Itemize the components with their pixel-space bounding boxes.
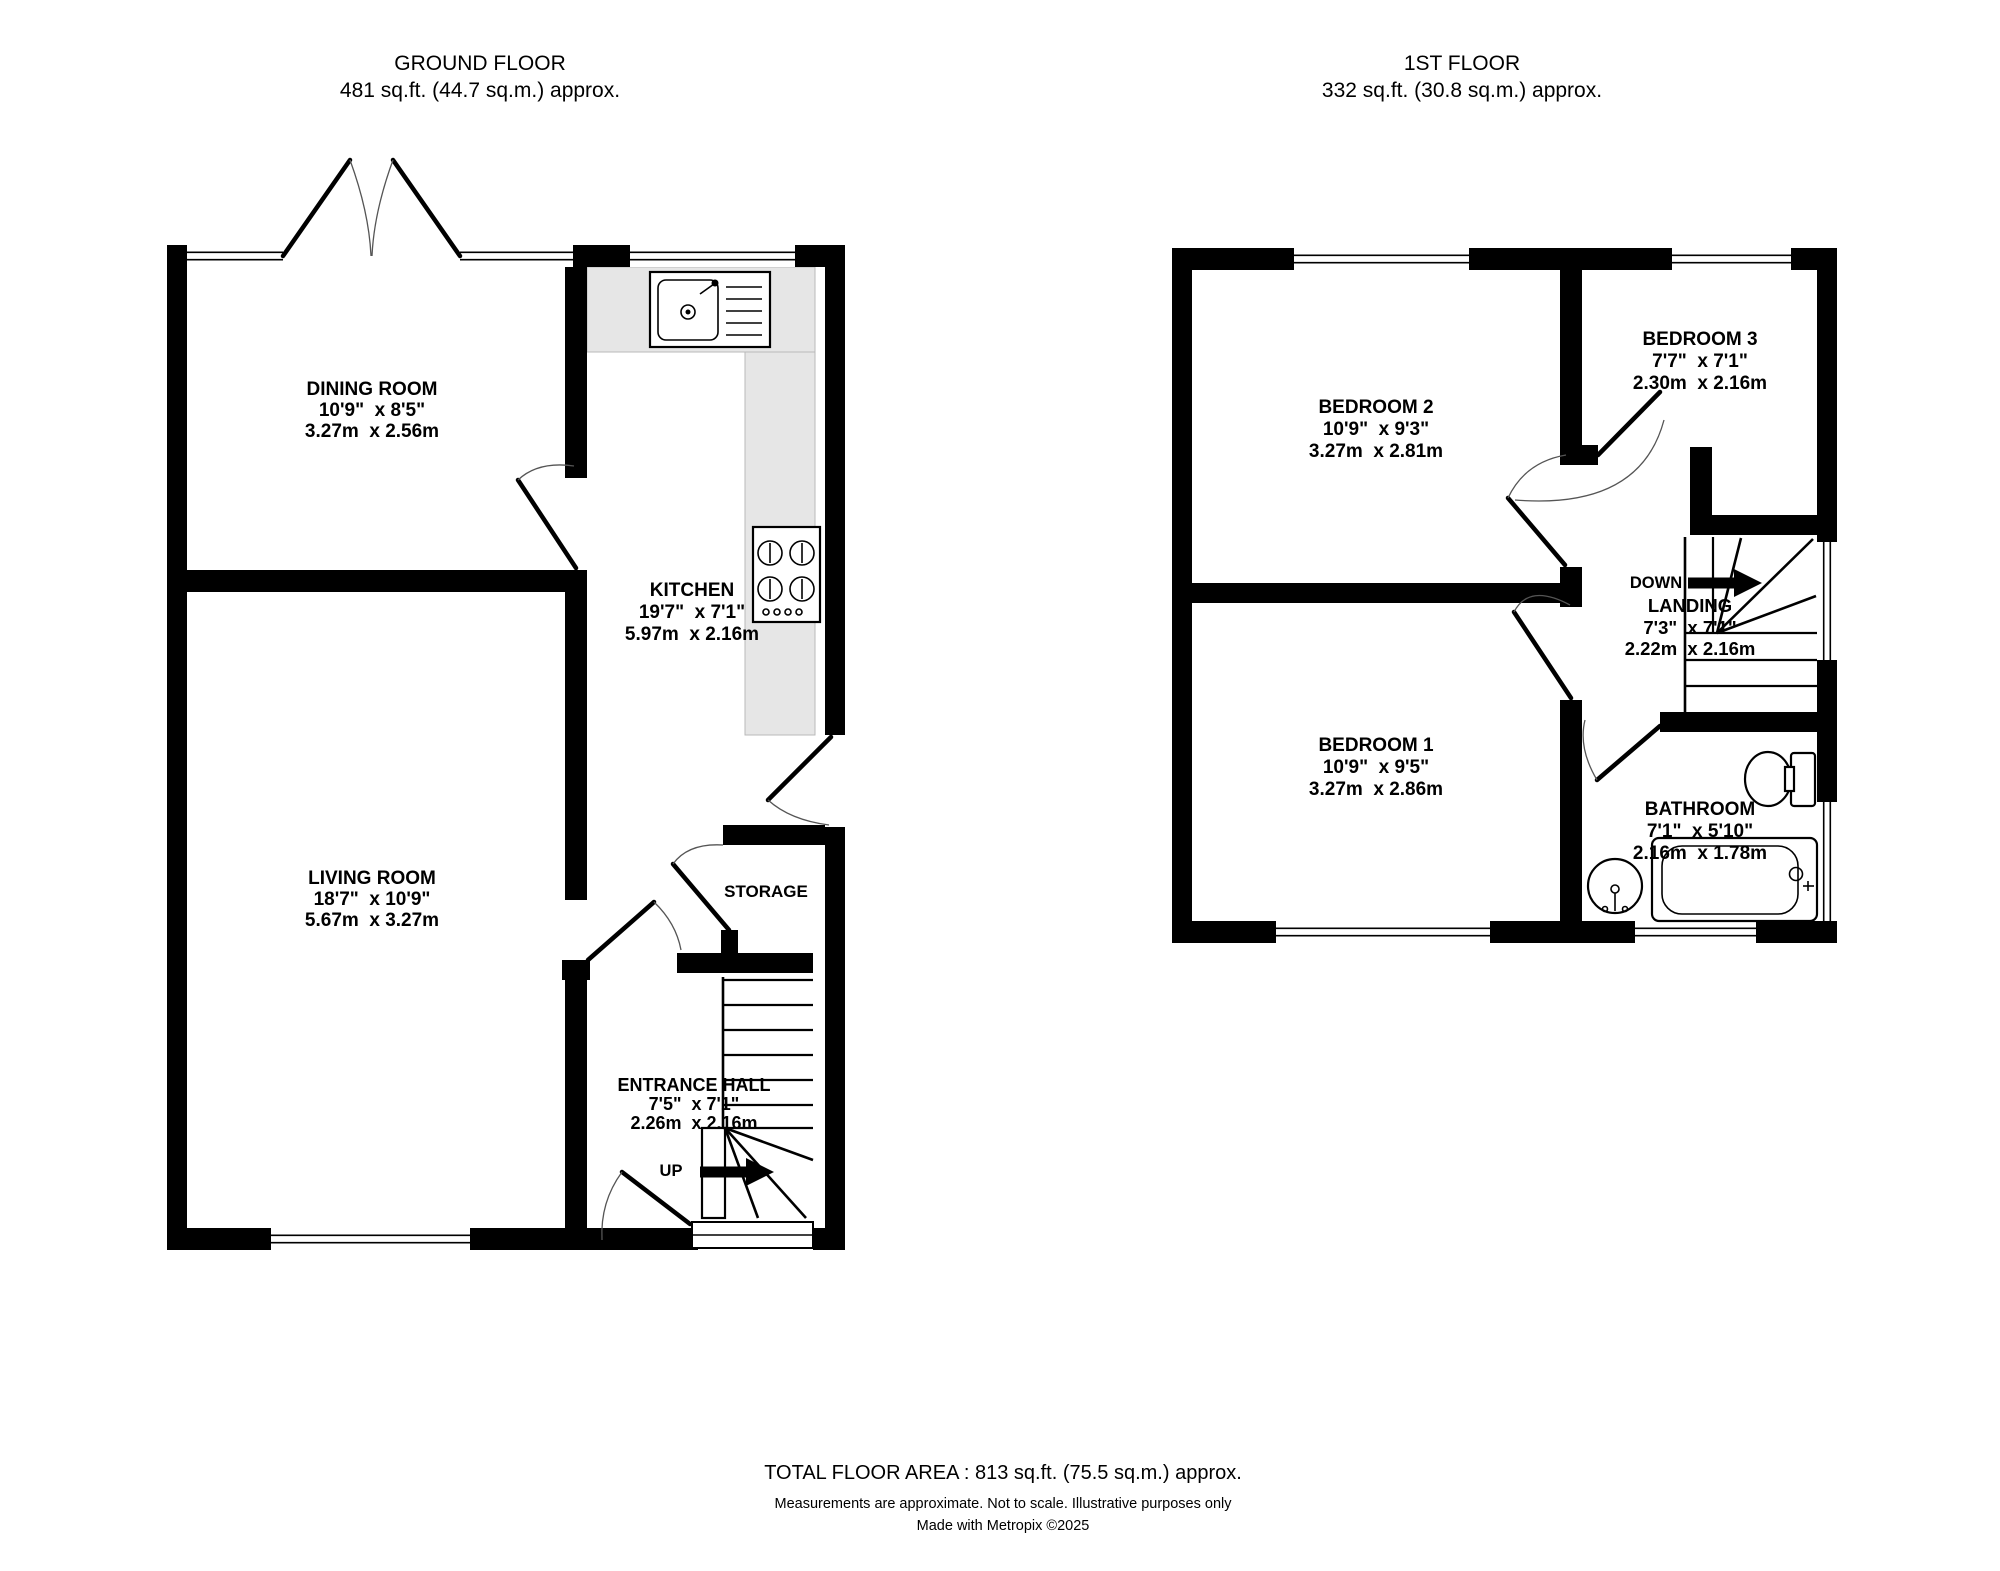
bedroom2-door-swing	[1508, 455, 1566, 565]
room-label-landing: LANDING 7'3" x 7'1" 2.22m x 2.16m	[1625, 595, 1756, 660]
room-label-living: LIVING ROOM 18'7" x 10'9" 5.67m x 3.27m	[305, 868, 439, 931]
kitchen-sink-icon	[650, 272, 770, 347]
window	[630, 245, 795, 267]
first-floor-title: 1ST FLOOR	[1322, 50, 1602, 77]
window	[271, 1228, 470, 1250]
window	[1672, 248, 1791, 270]
bathroom-door-swing	[1583, 720, 1660, 780]
room-label-storage: STORAGE	[724, 883, 808, 901]
patio-doors	[283, 160, 460, 256]
toilet-icon	[1745, 752, 1815, 806]
hob-icon	[753, 527, 820, 622]
first-floor-header: 1ST FLOOR 332 sq.ft. (30.8 sq.m.) approx…	[1322, 50, 1602, 104]
room-label-entrance-hall: ENTRANCE HALL 7'5" x 7'1" 2.26m x 2.16m	[618, 1076, 771, 1133]
disclaimer-text: Measurements are approximate. Not to sca…	[775, 1494, 1232, 1515]
window	[187, 245, 283, 267]
first-floor-area: 332 sq.ft. (30.8 sq.m.) approx.	[1322, 77, 1602, 104]
ground-floor-area: 481 sq.ft. (44.7 sq.m.) approx.	[340, 77, 620, 104]
window	[1294, 248, 1469, 270]
window	[1635, 921, 1756, 943]
stairs-down-label: DOWN	[1630, 575, 1682, 592]
credit-text: Made with Metropix ©2025	[917, 1516, 1090, 1537]
back-door-swing	[768, 737, 831, 825]
room-label-bedroom2: BEDROOM 2 10'9" x 9'3" 3.27m x 2.81m	[1309, 397, 1443, 463]
front-door-sill	[692, 1222, 813, 1248]
floorplan-page: GROUND FLOOR 481 sq.ft. (44.7 sq.m.) app…	[0, 0, 2000, 1571]
dining-door-swing	[518, 465, 576, 568]
window	[1817, 802, 1837, 921]
ground-floor-header: GROUND FLOOR 481 sq.ft. (44.7 sq.m.) app…	[340, 50, 620, 104]
bedroom1-door-swing	[1514, 596, 1571, 698]
total-floor-area: TOTAL FLOOR AREA : 813 sq.ft. (75.5 sq.m…	[764, 1462, 1242, 1484]
room-label-dining: DINING ROOM 10'9" x 8'5" 3.27m x 2.56m	[305, 379, 439, 442]
room-label-bedroom1: BEDROOM 1 10'9" x 9'5" 3.27m x 2.86m	[1309, 735, 1443, 801]
window	[1276, 921, 1490, 943]
ground-floor-title: GROUND FLOOR	[340, 50, 620, 77]
window	[460, 245, 573, 267]
room-label-kitchen: KITCHEN 19'7" x 7'1" 5.97m x 2.16m	[625, 580, 759, 646]
room-label-bedroom3: BEDROOM 3 7'7" x 7'1" 2.30m x 2.16m	[1633, 329, 1767, 395]
stairs-up-label: UP	[660, 1163, 683, 1180]
down-arrow-icon	[1688, 569, 1762, 597]
window	[1817, 542, 1837, 660]
basin-icon	[1588, 859, 1642, 913]
living-door-swing	[588, 902, 681, 960]
room-label-bathroom: BATHROOM 7'1" x 5'10" 2.16m x 1.78m	[1633, 799, 1767, 865]
floorplan-drawing	[0, 0, 2000, 1571]
storage-door-swing	[673, 845, 729, 930]
